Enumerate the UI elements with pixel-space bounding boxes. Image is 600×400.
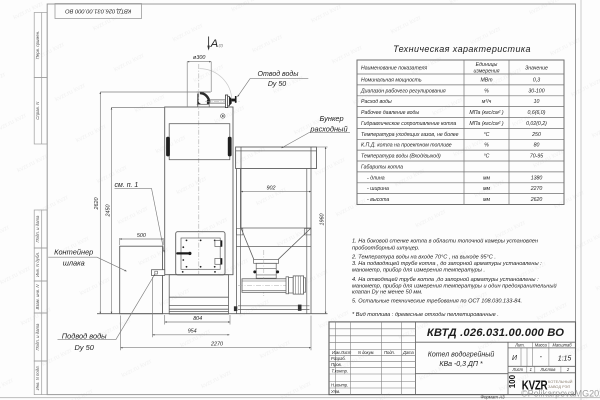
svg-text:1380: 1380 [531,175,543,181]
svg-text:3. На подводящей трубе котла: 3. На подводящей трубе котла , до запорн… [352,260,542,267]
svg-text:250: 250 [531,132,541,138]
svg-text:0,3: 0,3 [533,78,540,84]
svg-text:Номинальная мощность: Номинальная мощность [361,78,422,84]
svg-text:Инв. N подл.: Инв. N подл. [35,365,40,390]
svg-text:Котел водогрейный: Котел водогрейный [428,351,495,359]
svg-text:(2): (2) [219,43,223,47]
svg-text:МПа (кгс/см² ): МПа (кгс/см² ) [469,121,503,127]
svg-text:- высота: - высота [367,197,389,203]
svg-text:Наименование показателя: Наименование показателя [361,65,427,71]
svg-text:Dy 50: Dy 50 [268,81,286,88]
svg-text:мм: мм [483,175,491,181]
svg-text:2270: 2270 [210,342,223,348]
svg-text:°С: °С [484,132,490,138]
svg-text:1: 1 [530,367,532,372]
svg-text:клапан Dy не менее 50 мм.: клапан Dy не менее 50 мм. [352,290,423,296]
svg-text:4. На отводящей трубе котла ,: 4. На отводящей трубе котла ,до запорной… [352,276,539,283]
svg-text:0,02(0,2): 0,02(0,2) [526,121,547,127]
svg-text:манометр, прибор для измерения: манометр, прибор для измерения температу… [352,282,557,289]
svg-text:расходный: расходный [309,124,347,133]
svg-text:Рабочее давление воды: Рабочее давление воды [361,110,419,116]
svg-text:Утв.: Утв. [331,389,340,394]
svg-text:%: % [484,143,489,149]
svg-text:Диапазон рабочего регулировани: Диапазон рабочего регулирования [360,88,446,94]
svg-text:Масса: Масса [535,342,548,347]
svg-text:Пров.: Пров. [331,362,342,367]
svg-text:Н.контр.: Н.контр. [331,383,348,388]
svg-text:A: A [210,38,219,50]
svg-text:2620: 2620 [94,198,100,211]
svg-text:МПа (кгс/см² ): МПа (кгс/см² ) [469,110,503,116]
svg-text:Отвод воды: Отвод воды [258,70,300,78]
svg-text:Перв. примен.: Перв. примен. [35,31,40,60]
svg-text:70-95: 70-95 [530,154,543,160]
svg-text:- ширина: - ширина [367,186,389,192]
svg-text:Инв. N дубл.: Инв. N дубл. [35,252,40,277]
svg-text:Взам. инв. N: Взам. инв. N [35,284,40,310]
svg-text:Подп. и дата: Подп. и дата [35,323,40,351]
svg-text:%: % [484,88,489,94]
svg-text:Подвод воды: Подвод воды [62,332,107,341]
svg-text:Единицы: Единицы [476,62,498,68]
svg-text:N докум.: N докум. [358,350,375,355]
svg-text:К.П.Д. котла на проектном топл: К.П.Д. котла на проектном топливе [361,143,452,149]
svg-text:954: 954 [188,329,197,335]
svg-text:10: 10 [534,99,540,105]
svg-text:2450: 2450 [105,205,111,218]
svg-text:Масштаб: Масштаб [552,342,572,347]
svg-text:2620: 2620 [530,197,543,203]
svg-text:Температура уходящих газов, не: Температура уходящих газов, не более [361,132,459,138]
svg-text:Лист: Лист [512,367,524,372]
svg-text:80: 80 [534,143,540,149]
svg-text:5. Остальные технические треб: 5. Остальные технические требования по О… [352,299,522,305]
svg-text:мм: мм [483,197,491,203]
svg-text:Справ. N: Справ. N [35,101,40,120]
svg-text:КВТД .026.031.00.000 ВО: КВТД .026.031.00.000 ВО [427,327,564,339]
svg-text:Температура воды (Вход/выход): Температура воды (Вход/выход) [361,154,441,160]
svg-text:0,6(6,0): 0,6(6,0) [528,110,546,116]
svg-text:°С: °С [484,154,490,160]
svg-text:измерения: измерения [474,68,500,74]
svg-text:1:15: 1:15 [558,355,572,362]
svg-text:Дата: Дата [402,350,415,355]
svg-text:Формат А3: Формат А3 [480,394,505,399]
svg-text:Бункер: Бункер [320,114,344,123]
svg-text:Расход воды: Расход воды [361,99,392,105]
svg-text:Гидравлическое сопротивление к: Гидравлическое сопротивление котла [361,121,456,127]
svg-text:Лит.: Лит. [514,342,525,347]
svg-text:Изм.Лист: Изм.Лист [332,350,352,355]
svg-text:Техническая характеристика: Техническая характеристика [393,44,531,54]
svg-text:1960: 1960 [319,214,325,226]
svg-text:пробоотборный штуцер.: пробоотборный штуцер. [352,245,420,252]
svg-text:2270: 2270 [530,186,543,192]
svg-text:©PolikarpovaMG2021: ©PolikarpovaMG2021 [521,388,600,398]
svg-text:Подп. и дата: Подп. и дата [35,215,40,243]
svg-text:КВа -0,3 ДП *: КВа -0,3 ДП * [439,361,483,368]
svg-text:шлака: шлака [63,258,85,267]
svg-text:1. На боковой стенке котла в: 1. На боковой стенке котла в области топ… [352,238,538,245]
svg-text:100: 100 [508,374,517,388]
svg-text:Значение: Значение [525,65,548,71]
svg-text:Dy 50: Dy 50 [75,343,95,352]
svg-text:манометр, прибор для измерени: манометр, прибор для измерения температу… [352,267,485,273]
svg-text:см. п. 1: см. п. 1 [115,182,139,189]
svg-text:КВТД.026.031.00.000 ВО: КВТД.026.031.00.000 ВО [65,8,132,14]
svg-text:- длина: - длина [367,175,385,181]
svg-text:Разраб.: Разраб. [331,356,346,361]
svg-text:ø300: ø300 [193,55,205,61]
svg-text:500: 500 [137,233,146,239]
svg-text:2. Температура воды на входе: 2. Температура воды на входе 70°С , на в… [351,255,496,261]
svg-text:902: 902 [267,186,276,192]
svg-text:м³/ч: м³/ч [482,99,492,105]
svg-text:Контейнер: Контейнер [54,247,93,256]
svg-text:* Вид топлива : древесные от: * Вид топлива : древесные отходы пеллети… [352,312,499,318]
svg-text:МВт: МВт [480,78,493,84]
svg-text:804: 804 [193,316,202,322]
svg-text:Подп.: Подп. [384,350,395,355]
svg-text:Т.контр.: Т.контр. [332,368,349,373]
svg-text:мм: мм [483,186,491,192]
svg-text:Листов: Листов [539,367,556,372]
svg-text:Габариты котла: Габариты котла [361,165,403,171]
svg-text:30-100: 30-100 [528,88,544,94]
